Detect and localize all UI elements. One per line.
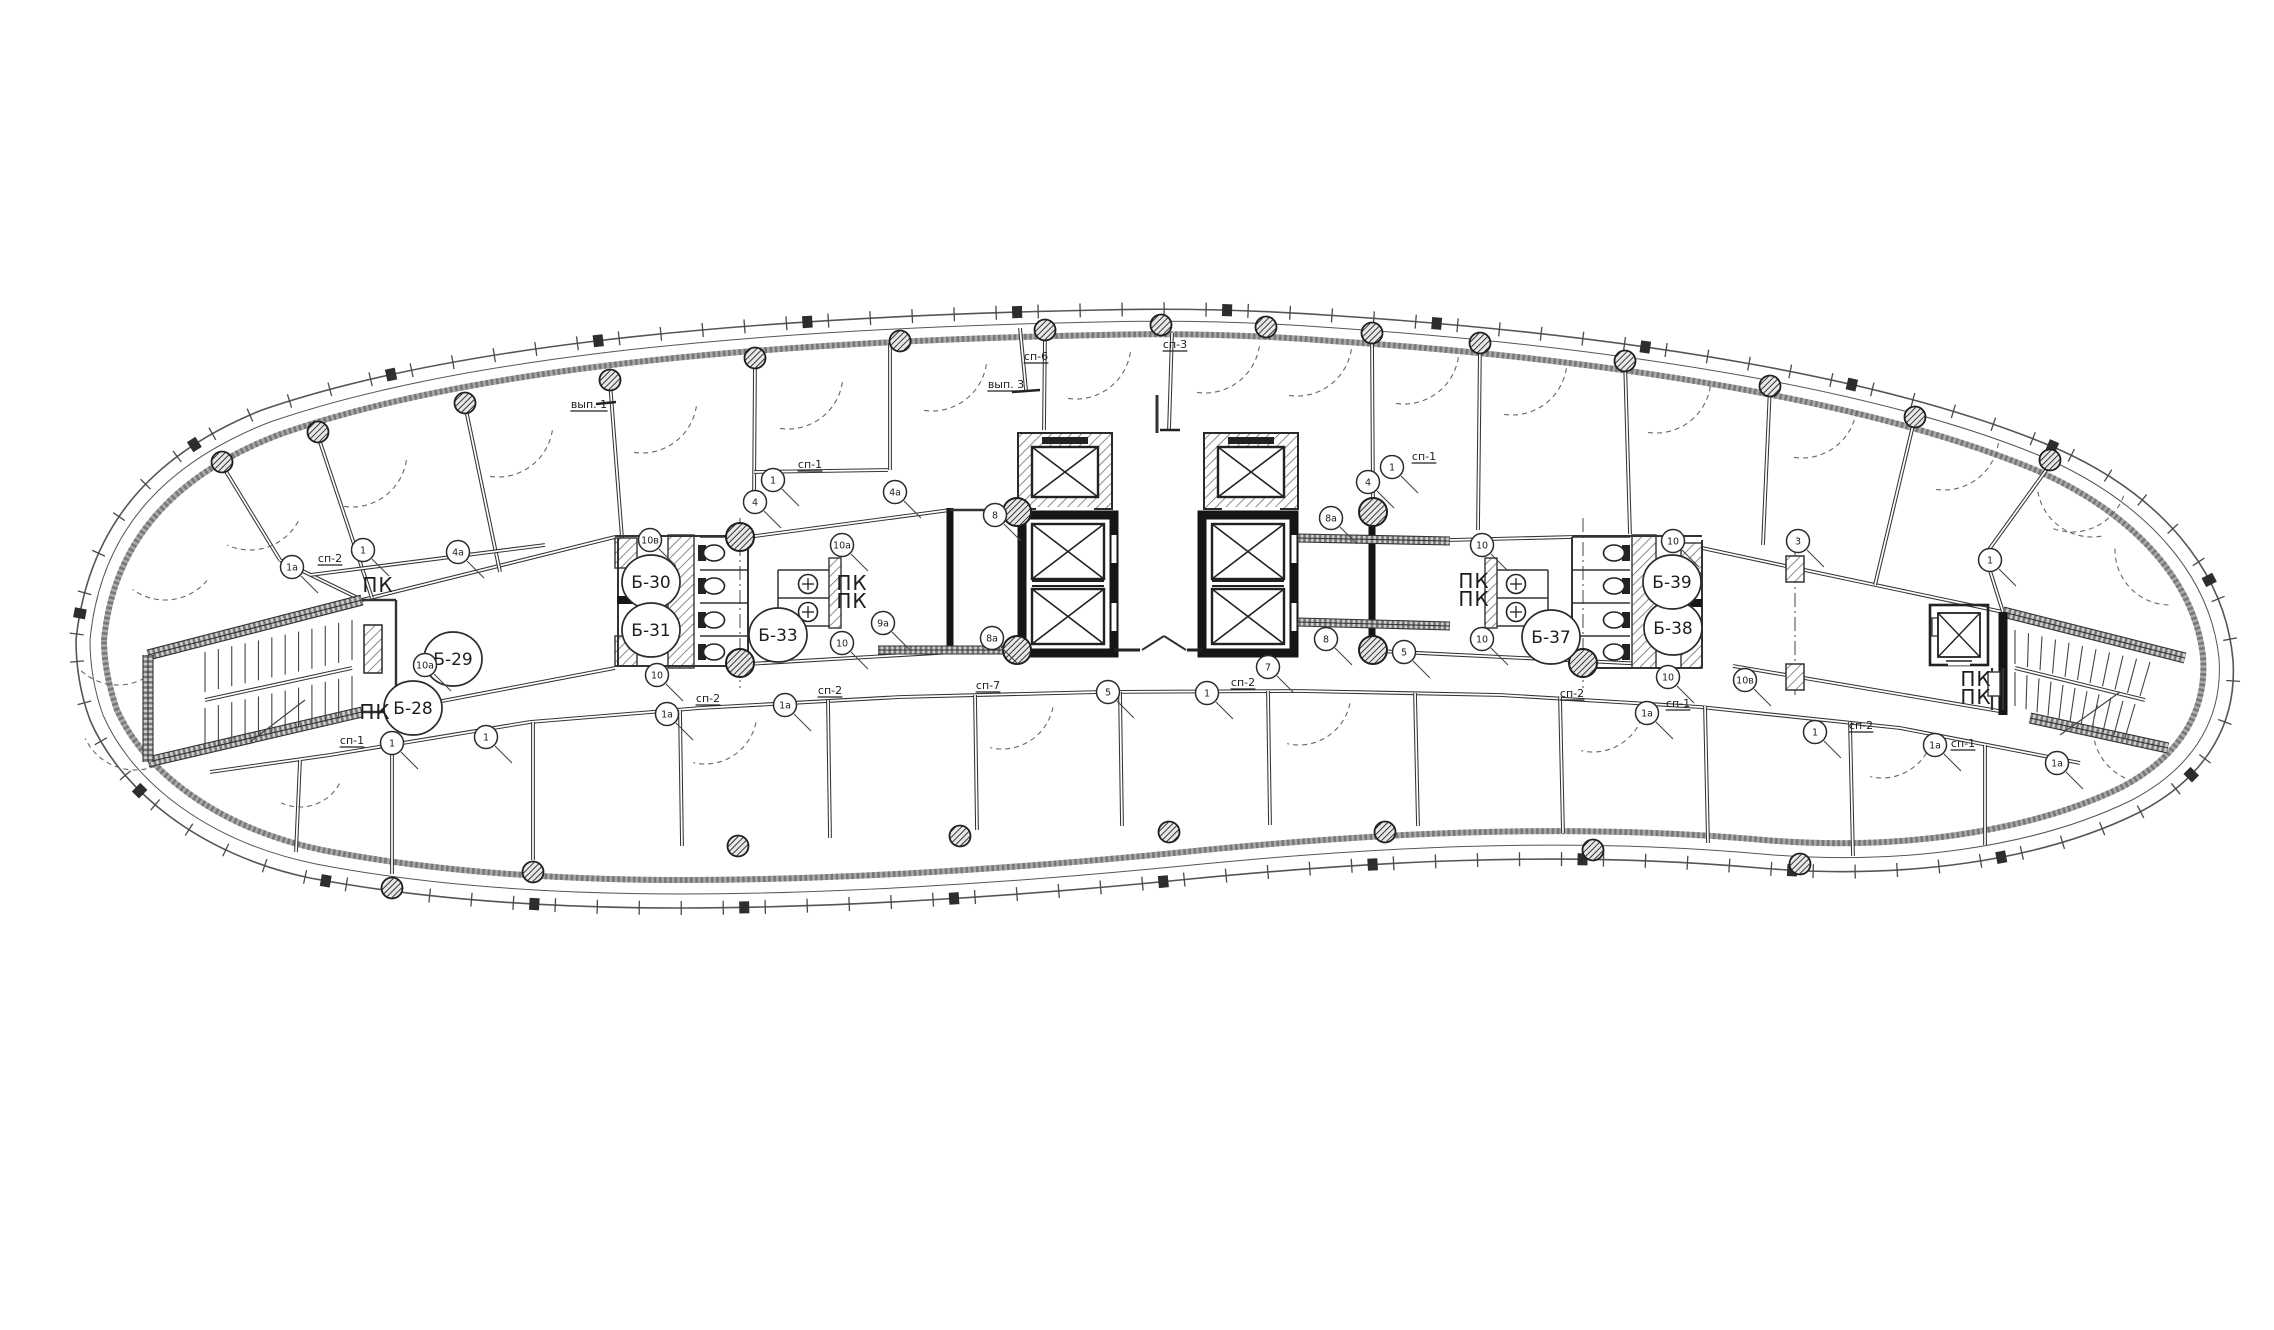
svg-text:Б-29: Б-29 xyxy=(433,650,472,670)
exterior-wall xyxy=(104,334,2203,880)
svg-text:1а: 1а xyxy=(1929,741,1941,752)
utility-label-сп-1: сп-1 xyxy=(1412,450,1436,463)
utility-label-сп-2: сп-2 xyxy=(318,552,342,565)
keynote-marker-7: 7 xyxy=(1257,656,1295,694)
utility-label-вып. 1: вып. 1 xyxy=(571,398,607,411)
svg-text:1а: 1а xyxy=(2051,759,2063,770)
keynote-marker-4: 4 xyxy=(744,491,782,529)
svg-text:Б-28: Б-28 xyxy=(393,699,432,719)
keynote-marker-5: 5 xyxy=(1097,681,1135,719)
keynote-marker-1а: 1а xyxy=(2046,752,2084,790)
inner-glazing-line xyxy=(90,321,2219,894)
keynote-marker-10: 10 xyxy=(1471,628,1509,666)
fire-cabinet-label: ПК xyxy=(362,573,393,597)
svg-text:10: 10 xyxy=(1476,541,1488,552)
svg-text:8: 8 xyxy=(1323,635,1329,646)
svg-text:4а: 4а xyxy=(889,488,901,499)
utility-label-сп-2: сп-2 xyxy=(818,684,842,697)
fire-cabinet-label: ПК xyxy=(836,589,867,613)
svg-text:7: 7 xyxy=(1265,663,1271,674)
svg-text:1а: 1а xyxy=(286,563,298,574)
svg-text:5: 5 xyxy=(1105,688,1111,699)
svg-text:4: 4 xyxy=(1365,478,1371,489)
keynote-marker-4а: 4а xyxy=(884,481,922,519)
svg-text:Б-37: Б-37 xyxy=(1531,628,1570,648)
svg-text:8а: 8а xyxy=(986,634,998,645)
svg-text:1а: 1а xyxy=(1641,709,1653,720)
svg-text:10в: 10в xyxy=(1736,676,1754,687)
svg-text:1: 1 xyxy=(389,739,395,750)
svg-text:1: 1 xyxy=(483,733,489,744)
svg-text:Б-38: Б-38 xyxy=(1653,619,1692,639)
svg-text:1: 1 xyxy=(1987,556,1993,567)
structural-columns xyxy=(212,315,2061,899)
utility-label-сп-1: сп-1 xyxy=(1666,697,1690,710)
utility-label-сп-3: сп-3 xyxy=(1163,338,1187,351)
fire-cabinet-label: ПК xyxy=(1960,685,1991,709)
keynote-marker-5: 5 xyxy=(1393,641,1431,679)
elevator-core xyxy=(878,395,1450,655)
utility-label-сп-2: сп-2 xyxy=(1231,676,1255,689)
keynote-marker-8: 8 xyxy=(1315,628,1353,666)
keynote-marker-1: 1 xyxy=(475,726,513,764)
svg-text:1: 1 xyxy=(770,476,776,487)
svg-text:10: 10 xyxy=(1667,537,1679,548)
svg-text:1: 1 xyxy=(1812,728,1818,739)
room-label-Б-31: Б-31 xyxy=(622,603,680,657)
svg-text:10: 10 xyxy=(1476,635,1488,646)
fire-cabinet-label: ПК xyxy=(359,700,390,724)
keynote-marker-1: 1 xyxy=(1196,682,1234,720)
keynote-marker-1а: 1а xyxy=(774,694,812,732)
exterior-wall-hatch xyxy=(104,334,2203,880)
utility-label-сп-2: сп-2 xyxy=(696,692,720,705)
svg-text:10а: 10а xyxy=(833,541,851,552)
room-label-Б-30: Б-30 xyxy=(622,555,680,609)
svg-text:Б-39: Б-39 xyxy=(1652,573,1691,593)
svg-text:3: 3 xyxy=(1795,537,1801,548)
utility-label-сп-2: сп-2 xyxy=(1560,687,1584,700)
svg-text:10в: 10в xyxy=(641,536,659,547)
floor-plan-stage: Б-28Б-29Б-30Б-31Б-33Б-37Б-38Б-39ПКПКПКПК… xyxy=(0,0,2274,1330)
utility-label-сп-6: сп-6 xyxy=(1024,350,1048,363)
svg-text:1: 1 xyxy=(1389,463,1395,474)
room-label-Б-37: Б-37 xyxy=(1522,610,1580,664)
svg-text:Б-31: Б-31 xyxy=(631,621,670,641)
keynote-marker-1: 1 xyxy=(1979,549,2017,587)
keynote-marker-1: 1 xyxy=(1804,721,1842,759)
interior-partitions xyxy=(210,328,2080,874)
floor-plan-svg: Б-28Б-29Б-30Б-31Б-33Б-37Б-38Б-39ПКПКПКПК… xyxy=(0,0,2274,1330)
keynote-marker-10: 10 xyxy=(646,664,684,702)
svg-text:10: 10 xyxy=(651,671,663,682)
keynote-marker-10в: 10в xyxy=(1734,669,1772,707)
building-shell xyxy=(76,309,2233,908)
utility-label-сп-2: сп-2 xyxy=(1849,719,1873,732)
svg-text:9а: 9а xyxy=(877,619,889,630)
svg-text:4а: 4а xyxy=(452,548,464,559)
svg-text:1а: 1а xyxy=(779,701,791,712)
utility-label-сп-1: сп-1 xyxy=(1951,737,1975,750)
room-label-Б-28: Б-28 xyxy=(384,681,442,735)
keynote-marker-10: 10 xyxy=(831,632,869,670)
utility-label-вып. 3: вып. 3 xyxy=(988,378,1024,391)
svg-text:10: 10 xyxy=(836,639,848,650)
svg-text:5: 5 xyxy=(1401,648,1407,659)
svg-text:4: 4 xyxy=(752,498,758,509)
svg-text:1: 1 xyxy=(1204,689,1210,700)
svg-text:10а: 10а xyxy=(416,661,434,672)
svg-text:1а: 1а xyxy=(661,710,673,721)
svg-text:Б-30: Б-30 xyxy=(631,573,670,593)
svg-text:8: 8 xyxy=(992,511,998,522)
room-label-Б-39: Б-39 xyxy=(1643,555,1701,609)
utility-label-сп-1: сп-1 xyxy=(798,458,822,471)
keynote-marker-9а: 9а xyxy=(872,612,910,650)
utility-label-сп-1: сп-1 xyxy=(340,734,364,747)
room-label-Б-33: Б-33 xyxy=(749,608,807,662)
svg-text:1: 1 xyxy=(360,546,366,557)
keynote-marker-1: 1 xyxy=(381,732,419,770)
svg-text:8а: 8а xyxy=(1325,514,1337,525)
svg-text:Б-33: Б-33 xyxy=(758,626,797,646)
fire-cabinet-label: ПК xyxy=(1458,587,1489,611)
svg-text:10: 10 xyxy=(1662,673,1674,684)
utility-label-сп-7: сп-7 xyxy=(976,679,1000,692)
